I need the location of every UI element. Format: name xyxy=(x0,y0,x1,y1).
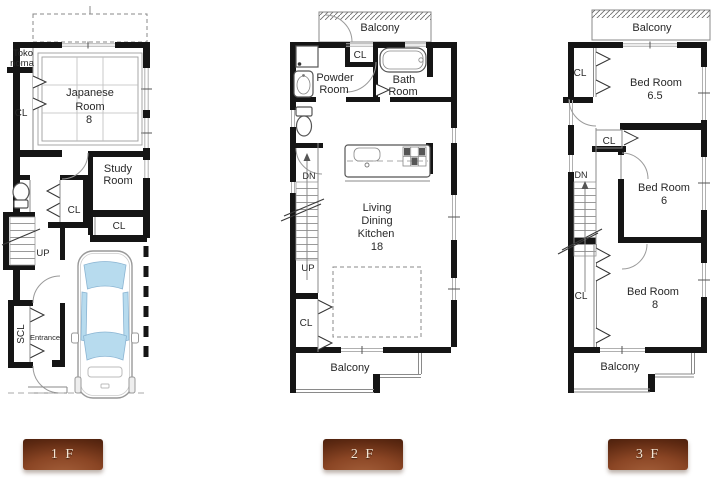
room-size-bedroom8: 8 xyxy=(652,299,658,311)
floor-plan-2f: Balcony CL Powder Room Bath Room DN Livi… xyxy=(281,12,460,393)
washing-machine-icon xyxy=(296,46,318,67)
floor-2-plaque: 2 F xyxy=(323,439,403,470)
room-label-powder-1: Powder xyxy=(316,72,354,84)
car-icon xyxy=(72,251,139,398)
floor-1-plaque: 1 F xyxy=(23,439,103,470)
room-label-bedroom8: Bed Room xyxy=(627,286,679,298)
room-label-ldk-1: Living xyxy=(363,202,392,214)
closet-label-2f-top: CL xyxy=(354,50,367,61)
floor-1-plaque-text: 1 F xyxy=(51,447,75,463)
toilet-icon-2f xyxy=(296,107,312,136)
floor-plan-1f: Toko noma Japanese Room 8 CL Study Room … xyxy=(2,6,152,398)
floor-2-plaque-text: 2 F xyxy=(351,447,375,463)
closet-label-2f-bottom: CL xyxy=(300,318,313,329)
void-outline xyxy=(333,267,421,337)
floorplan-page: Toko noma Japanese Room 8 CL Study Room … xyxy=(0,0,719,478)
room-label-bath-2: Room xyxy=(388,86,417,98)
floor-3-plaque-text: 3 F xyxy=(636,447,660,463)
balcony-label-3f-top: Balcony xyxy=(632,22,672,34)
kitchen-counter-icon xyxy=(345,145,430,181)
room-size-bedroom65: 6.5 xyxy=(647,90,662,102)
balcony-label-2f-bottom: Balcony xyxy=(330,362,370,374)
room-size-ldk: 18 xyxy=(371,241,383,253)
room-label-tokonoma-2: noma xyxy=(10,58,34,69)
floor-plan-3f: Balcony CL Bed Room 6.5 CL DN Bed Room 6… xyxy=(558,10,710,393)
room-label-bath-1: Bath xyxy=(393,74,416,86)
roof-outline xyxy=(33,6,147,42)
room-label-ldk-3: Kitchen xyxy=(358,228,395,240)
room-size-japanese: 8 xyxy=(86,114,92,126)
room-label-study-1: Study xyxy=(104,163,133,175)
room-label-japanese-2: Room xyxy=(75,101,104,113)
tatami-grid xyxy=(33,48,142,150)
room-label-ldk-2: Dining xyxy=(361,215,392,227)
sink-icon xyxy=(294,71,313,97)
closet-label-3f-mid: CL xyxy=(603,136,616,147)
closet-label-1f-left: CL xyxy=(15,108,28,119)
floorplan-canvas: Toko noma Japanese Room 8 CL Study Room … xyxy=(0,0,719,478)
entrance-label: Entrance xyxy=(30,333,60,342)
stairs-up-label-2f: UP xyxy=(301,263,314,274)
room-label-study-2: Room xyxy=(103,175,132,187)
stairs-dn-label-2f: DN xyxy=(303,171,316,181)
room-label-bedroom65: Bed Room xyxy=(630,77,682,89)
room-label-bedroom6: Bed Room xyxy=(638,182,690,194)
room-label-japanese-1: Japanese xyxy=(66,87,114,99)
closet-label-1f-study: CL xyxy=(113,221,126,232)
staircase-3f xyxy=(558,181,602,292)
closet-label-1f-center: CL xyxy=(68,205,81,216)
floor-3-plaque: 3 F xyxy=(608,439,688,470)
room-size-bedroom6: 6 xyxy=(661,195,667,207)
closet-label-3f-bottom: CL xyxy=(575,291,588,302)
room-label-powder-2: Room xyxy=(319,84,348,96)
balcony-label-2f-top: Balcony xyxy=(360,22,400,34)
stairs-up-label-1f: UP xyxy=(36,248,49,259)
toilet-icon xyxy=(13,183,29,208)
balcony-label-3f-bottom: Balcony xyxy=(600,361,640,373)
stairs-dn-label-3f: DN xyxy=(575,170,588,180)
shoe-closet-label: SCL xyxy=(16,324,27,344)
closet-label-3f-top: CL xyxy=(574,68,587,79)
